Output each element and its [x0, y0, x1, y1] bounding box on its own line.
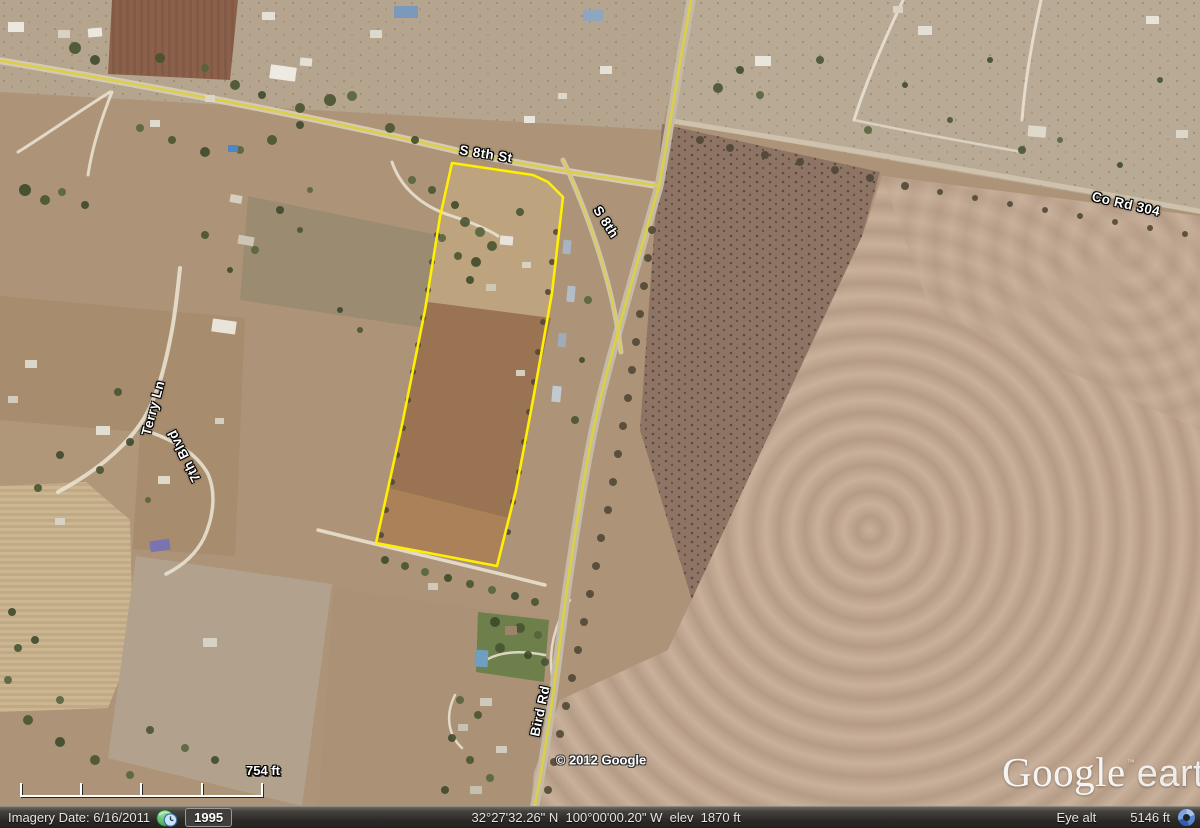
satellite-imagery — [0, 0, 1200, 828]
copyright-watermark: © 2012 Google — [556, 753, 647, 768]
eye-alt-label: Eye alt — [1056, 810, 1096, 825]
google-earth-logo-tm: ™ — [1127, 748, 1135, 767]
google-earth-logo-google: Google — [1002, 748, 1126, 796]
status-bar: Imagery Date: 6/16/2011 1995 32°27'32.26… — [0, 806, 1200, 828]
history-clock-icon[interactable] — [156, 808, 179, 828]
eye-alt-value: 5146 ft — [1130, 810, 1170, 825]
history-year-badge[interactable]: 1995 — [185, 808, 232, 827]
imagery-date-text: Imagery Date: 6/16/2011 — [8, 810, 150, 825]
google-earth-logo-earth: earth — [1137, 753, 1200, 796]
pointer-coordinates-text: 32°27'32.26" N 100°00'00.20" W elev 1870… — [472, 810, 741, 825]
streaming-indicator-icon — [1178, 809, 1195, 826]
satellite-map-viewport[interactable]: S 8th St S 8th Co Rd 304 Terry Ln 7th Bl… — [0, 0, 1200, 828]
google-earth-logo: Google ™ earth — [1002, 748, 1200, 796]
